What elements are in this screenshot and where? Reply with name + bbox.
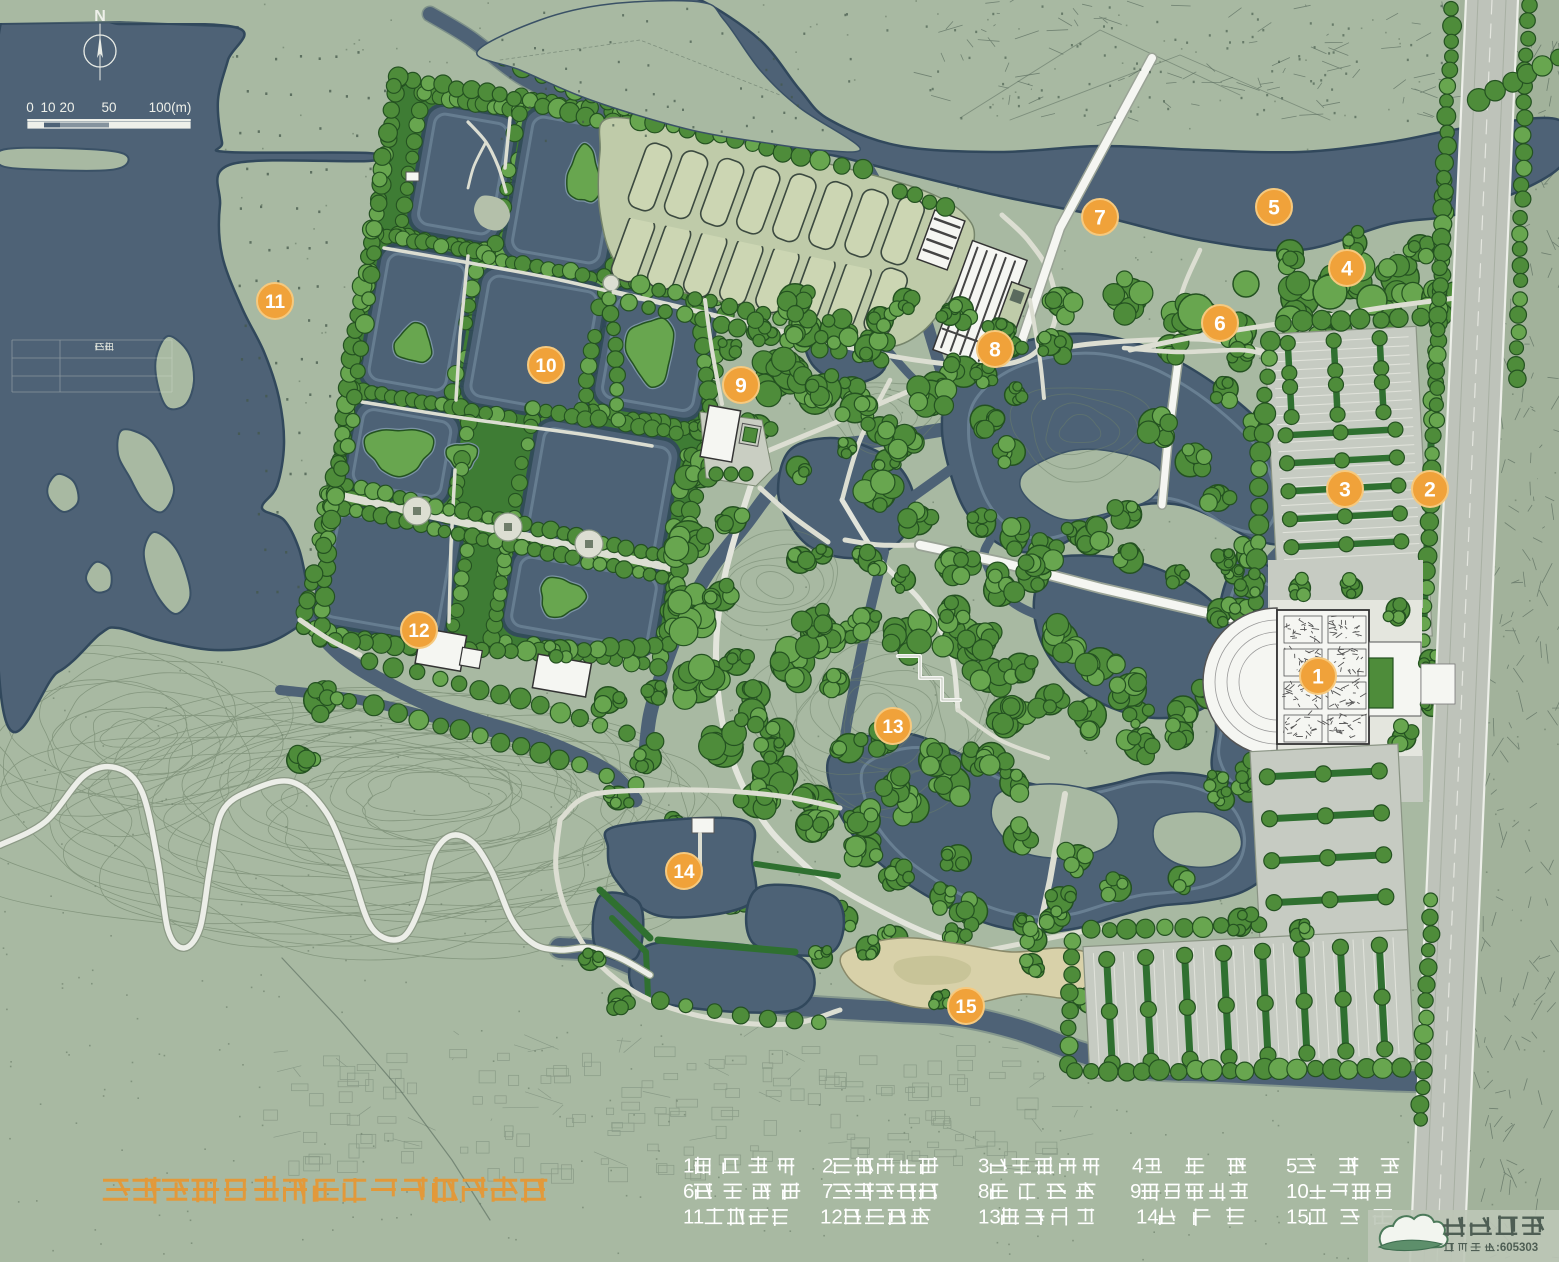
svg-text:6: 6 bbox=[683, 1180, 694, 1203]
svg-text:3: 3 bbox=[978, 1155, 989, 1178]
svg-text:50: 50 bbox=[101, 100, 116, 115]
svg-text:2: 2 bbox=[822, 1155, 833, 1178]
svg-text:13: 13 bbox=[882, 717, 903, 738]
svg-text:8: 8 bbox=[989, 339, 1001, 362]
svg-text:4: 4 bbox=[1341, 258, 1353, 281]
svg-text:9: 9 bbox=[1130, 1180, 1141, 1203]
svg-text:7: 7 bbox=[822, 1180, 833, 1203]
svg-text:13: 13 bbox=[978, 1206, 1001, 1229]
svg-text:1: 1 bbox=[683, 1155, 694, 1178]
svg-text:15: 15 bbox=[955, 997, 977, 1018]
svg-text:14: 14 bbox=[673, 862, 695, 883]
svg-text:14: 14 bbox=[1136, 1206, 1159, 1229]
svg-text:11: 11 bbox=[683, 1206, 704, 1229]
svg-text:0: 0 bbox=[26, 100, 34, 115]
svg-text:1: 1 bbox=[1312, 666, 1324, 689]
svg-text:6: 6 bbox=[1214, 313, 1226, 336]
svg-text:2: 2 bbox=[1424, 479, 1436, 502]
svg-text::605303: :605303 bbox=[1496, 1242, 1538, 1254]
svg-text:4: 4 bbox=[1132, 1155, 1143, 1178]
svg-text:12: 12 bbox=[820, 1206, 843, 1229]
svg-text:11: 11 bbox=[265, 292, 286, 313]
svg-text:8: 8 bbox=[978, 1180, 989, 1203]
svg-text:15: 15 bbox=[1286, 1206, 1309, 1229]
svg-text:N: N bbox=[94, 8, 106, 25]
svg-text:20: 20 bbox=[59, 100, 74, 115]
svg-text:3: 3 bbox=[1339, 479, 1351, 502]
svg-text:10: 10 bbox=[535, 356, 556, 377]
svg-text:12: 12 bbox=[408, 621, 429, 642]
svg-text:5: 5 bbox=[1286, 1155, 1297, 1178]
svg-text:5: 5 bbox=[1268, 197, 1280, 220]
svg-text:10: 10 bbox=[40, 100, 55, 115]
svg-text:9: 9 bbox=[735, 375, 747, 398]
svg-text:7: 7 bbox=[1094, 207, 1106, 230]
svg-text:100(m): 100(m) bbox=[149, 100, 192, 115]
svg-text:10: 10 bbox=[1286, 1180, 1309, 1203]
